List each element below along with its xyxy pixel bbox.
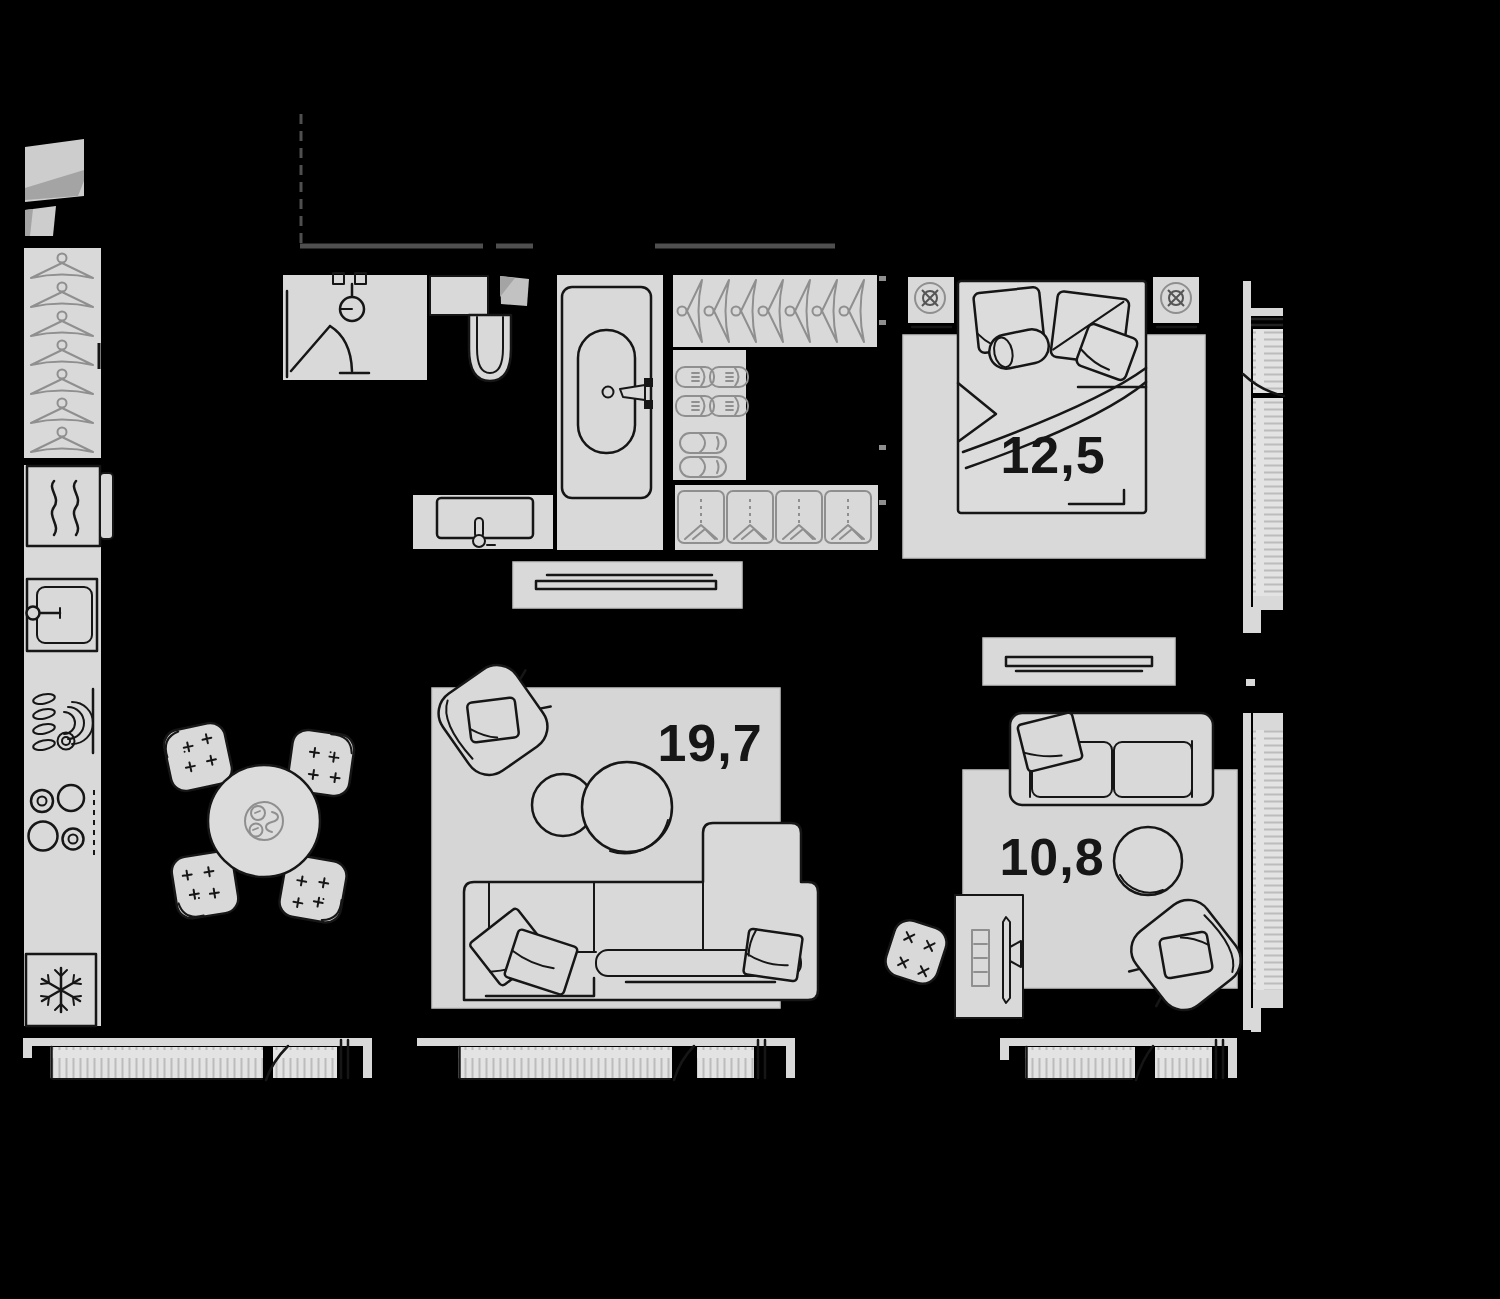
nightstand xyxy=(908,277,954,327)
bedroom-balcony-window xyxy=(1243,281,1284,633)
hall-bench xyxy=(513,562,742,608)
vanity-sink xyxy=(413,495,553,549)
wall-lines xyxy=(300,114,835,246)
lounge-bottom-window xyxy=(1000,1038,1237,1080)
door-swing-arc xyxy=(674,1046,694,1080)
oven-icon xyxy=(27,466,113,546)
lounge: 10,8 xyxy=(881,638,1283,1032)
shower-room xyxy=(283,273,427,380)
pillow-icon xyxy=(743,928,803,981)
corner-shelf xyxy=(500,276,529,306)
dining-table xyxy=(208,765,320,877)
living-room: 19,7 xyxy=(429,650,818,1008)
door-frame-ticks xyxy=(879,276,886,505)
pouf xyxy=(881,916,950,988)
kitchen-window xyxy=(23,1038,372,1080)
floor-plan: 12,5 xyxy=(0,0,1500,1299)
room-area-bedroom: 12,5 xyxy=(1000,426,1105,484)
bedroom: 12,5 xyxy=(903,277,1284,633)
fridge-icon xyxy=(26,954,96,1026)
lounge-console xyxy=(983,638,1175,685)
room-area-living: 19,7 xyxy=(657,714,762,772)
lounge-sofa xyxy=(1010,712,1213,805)
toilet-icon xyxy=(430,276,511,381)
key-plan-marks xyxy=(25,139,84,236)
closet xyxy=(673,275,886,550)
kitchen-sink-icon xyxy=(27,579,98,651)
door-swing-arc xyxy=(1136,1046,1153,1080)
room-area-lounge: 10,8 xyxy=(999,828,1104,886)
kitchen-column xyxy=(24,465,113,1026)
lounge-window xyxy=(1243,679,1283,1032)
living-window xyxy=(417,1038,795,1080)
dining-set xyxy=(161,720,356,925)
tv-stand xyxy=(955,895,1023,1018)
nightstand xyxy=(1153,277,1199,327)
round-table xyxy=(1114,827,1182,895)
bath-room xyxy=(557,275,663,550)
entry-wardrobe xyxy=(24,248,101,458)
